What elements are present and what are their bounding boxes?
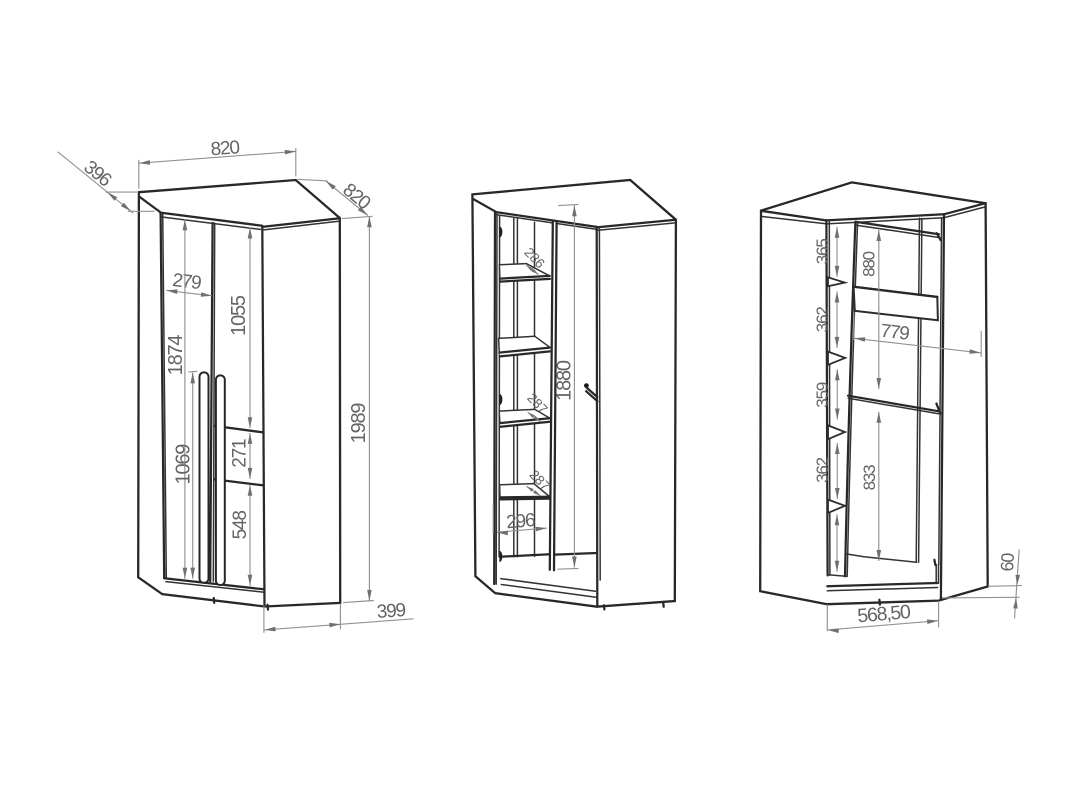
svg-text:271: 271 [230, 439, 251, 468]
svg-text:568,50: 568,50 [856, 601, 911, 627]
svg-text:1055: 1055 [228, 295, 250, 336]
svg-text:833: 833 [860, 465, 879, 491]
svg-text:279: 279 [171, 270, 202, 294]
svg-text:1874: 1874 [165, 335, 187, 376]
svg-text:296: 296 [505, 510, 535, 533]
svg-text:779: 779 [879, 321, 910, 345]
svg-text:362: 362 [813, 457, 832, 483]
svg-text:359: 359 [813, 382, 832, 408]
svg-text:548: 548 [230, 511, 251, 540]
svg-text:362: 362 [813, 307, 832, 333]
svg-text:820: 820 [210, 137, 240, 160]
svg-text:399: 399 [376, 600, 406, 623]
svg-text:60: 60 [997, 552, 1018, 572]
svg-text:1069: 1069 [173, 444, 195, 485]
svg-text:880: 880 [860, 251, 879, 277]
svg-text:1989: 1989 [348, 403, 370, 444]
svg-text:365: 365 [813, 239, 832, 265]
svg-text:1880: 1880 [554, 360, 576, 401]
